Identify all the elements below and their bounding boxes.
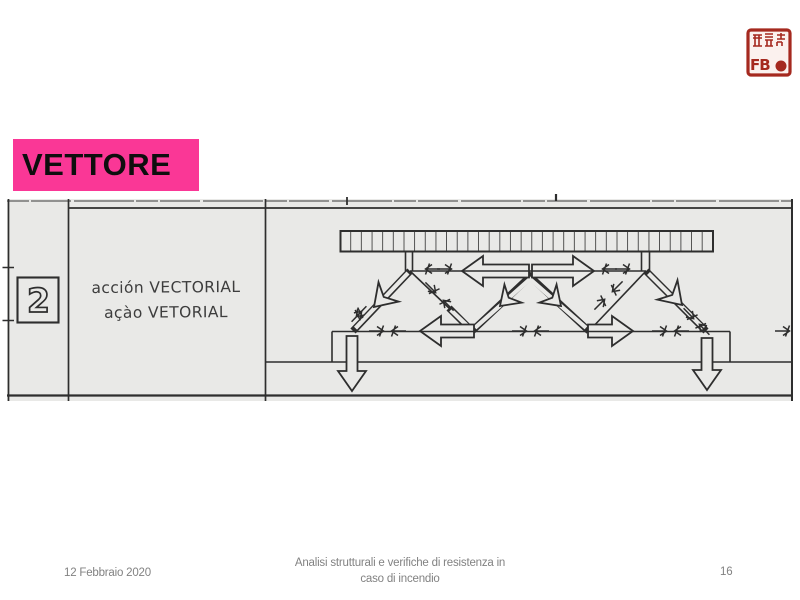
slide: { "slide": { "title": "VETTORE", "footer…	[0, 0, 800, 600]
footer-date: 12 Febbraio 2020	[64, 567, 151, 579]
footer-page-number: 16	[720, 566, 732, 578]
footer: 12 Febbraio 2020 Analisi strutturali e v…	[0, 0, 800, 600]
footer-subject-line-1: Analisi strutturali e verifiche di resis…	[250, 556, 550, 572]
footer-subject-line-2: caso di incendio	[250, 572, 550, 588]
footer-subject: Analisi strutturali e verifiche di resis…	[250, 556, 550, 587]
